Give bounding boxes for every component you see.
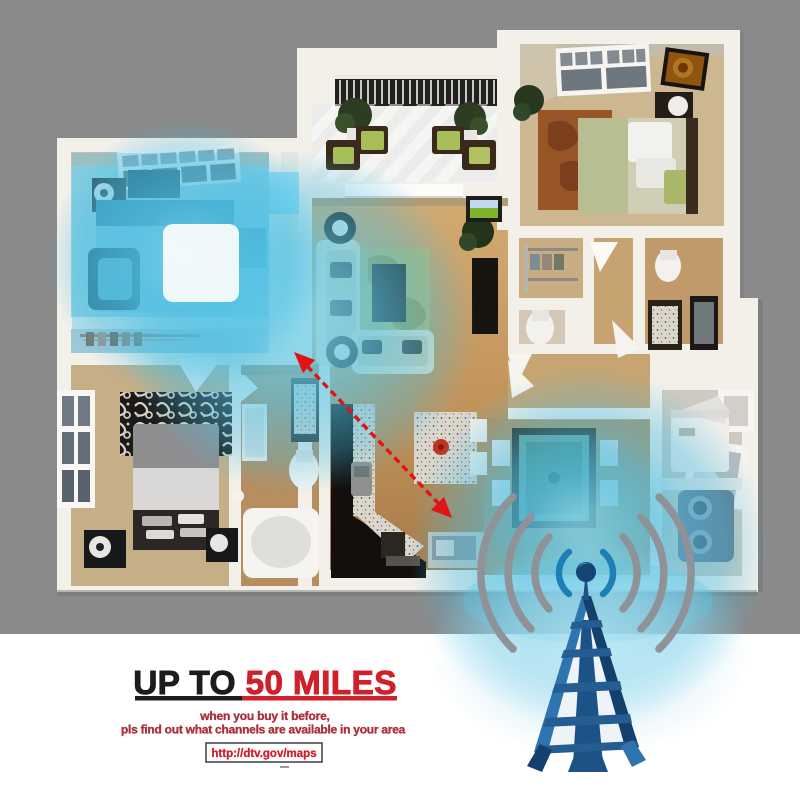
svg-text:pls find out what channels are: pls find out what channels are available…: [121, 723, 406, 737]
svg-text:when you buy it before,: when you buy it before,: [199, 709, 329, 723]
svg-text:http://dtv.gov/maps: http://dtv.gov/maps: [211, 748, 316, 760]
